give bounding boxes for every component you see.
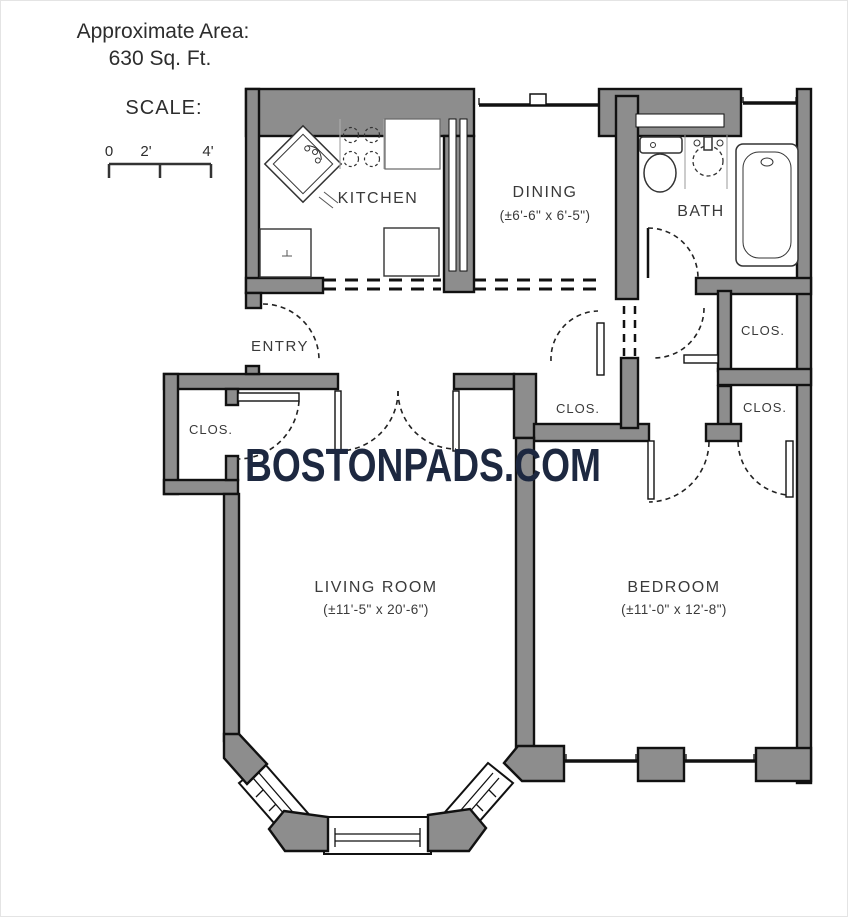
- floorplan-page: Approximate Area: 630 Sq. Ft. SCALE: 0 2…: [0, 0, 848, 917]
- wall-entry-bump: [246, 366, 259, 374]
- bedroom-closet-door-leaf: [786, 441, 793, 497]
- dining-label: DINING: [513, 184, 578, 201]
- bathtub-icon: [736, 144, 798, 266]
- bedroom-door-leaf: [648, 441, 654, 499]
- entry-label: ENTRY: [251, 338, 309, 355]
- wall-kitchen-left: [246, 89, 259, 293]
- kitchen-sink-icon: [265, 126, 341, 202]
- linen-closet-door-leaf: [684, 355, 718, 363]
- dining-passage-dashed: [473, 280, 599, 289]
- kitchen-counter: [385, 119, 440, 169]
- bath-fixtures: [640, 135, 798, 266]
- wall-entry-closet-left: [164, 374, 178, 494]
- kitchen-dining-slot-2: [460, 119, 467, 271]
- wall-living-top-left: [164, 374, 338, 389]
- wall-hall-pier: [514, 374, 536, 438]
- dining-dimensions: (±6'-6" x 6'-5"): [500, 208, 591, 223]
- scale-tick-0: 0: [105, 143, 113, 160]
- linen-closet-door-arc: [654, 308, 704, 358]
- wall-dining-bath-divider: [616, 96, 638, 299]
- wall-bedroom-bottom-corner: [756, 748, 811, 781]
- kitchen-passage-dashed: [323, 280, 441, 289]
- bostonpads-watermark: BOSTONPADS.COM: [245, 439, 601, 491]
- bath-door-arc: [648, 228, 698, 278]
- wall-closet-b-left: [718, 386, 731, 426]
- dining-window-mullion: [530, 94, 546, 105]
- wall-bay-corner-bottomleft: [269, 811, 328, 851]
- wall-closet-a-bottom: [718, 369, 811, 385]
- header-block: Approximate Area: 630 Sq. Ft. SCALE: 0 2…: [77, 20, 250, 160]
- wall-entry-closet-bottom: [164, 480, 238, 494]
- bath-label: BATH: [677, 203, 724, 220]
- wall-entry-stub: [246, 293, 261, 308]
- entry-closet-label: CLOS.: [189, 422, 233, 437]
- wall-closet-a-left: [718, 291, 731, 371]
- bath-top-window-slot: [636, 114, 724, 127]
- kitchen-label: KITCHEN: [338, 190, 419, 207]
- wall-vestibule-stub: [621, 358, 638, 428]
- hall-closet-label: CLOS.: [556, 401, 600, 416]
- bedroom-door-arc: [649, 442, 709, 502]
- approx-area-value: 630 Sq. Ft.: [109, 47, 212, 70]
- scale-tick-2: 2': [140, 143, 151, 160]
- wall-living-top-right: [454, 374, 514, 389]
- wall-bedroom-top-pier: [706, 424, 741, 441]
- linen-closet-label: CLOS.: [741, 323, 785, 338]
- living-room-label: LIVING ROOM: [314, 579, 437, 596]
- floorplan-drawing: Approximate Area: 630 Sq. Ft. SCALE: 0 2…: [1, 1, 848, 917]
- entry-closet-door-leaf: [238, 393, 299, 401]
- wall-living-left: [224, 494, 239, 741]
- open-passages: [323, 280, 635, 356]
- approx-area-label: Approximate Area:: [77, 20, 250, 43]
- wall-bath-bottom: [696, 278, 811, 294]
- wall-slots: [449, 114, 724, 271]
- bedroom-label: BEDROOM: [627, 579, 720, 596]
- living-room-dimensions: (±11'-5" x 20'-6"): [323, 602, 429, 617]
- bay-window-front: [324, 817, 431, 854]
- wall-entry-closet-stub-top: [226, 389, 238, 405]
- bedroom-dimensions: (±11'-0" x 12'-8"): [621, 602, 727, 617]
- hall-opening-dashed: [624, 306, 635, 356]
- kitchen-appliance-right: [384, 228, 439, 276]
- hall-door-leaf: [597, 323, 604, 375]
- kitchen-dining-slot-1: [449, 119, 456, 271]
- wall-bay-corner-topright: [504, 746, 564, 781]
- scale-tick-4: 4': [202, 143, 213, 160]
- bath-sink-icon: [693, 137, 723, 176]
- wall-right: [797, 89, 811, 783]
- bedroom-closet-label: CLOS.: [743, 400, 787, 415]
- toilet-icon: [640, 137, 682, 192]
- scale-label: SCALE:: [125, 97, 202, 119]
- bedroom-closet-door-arc: [738, 442, 787, 495]
- wall-entry-closet-stub-bottom: [226, 456, 238, 480]
- sink-shadow-lines: [319, 192, 338, 208]
- wall-kitchen-bottom: [246, 278, 323, 293]
- scale-bar: [109, 164, 211, 178]
- kitchen-appliance-left: [260, 229, 311, 277]
- hall-door-arc: [551, 311, 598, 361]
- wall-bedroom-bottom-pier: [638, 748, 684, 781]
